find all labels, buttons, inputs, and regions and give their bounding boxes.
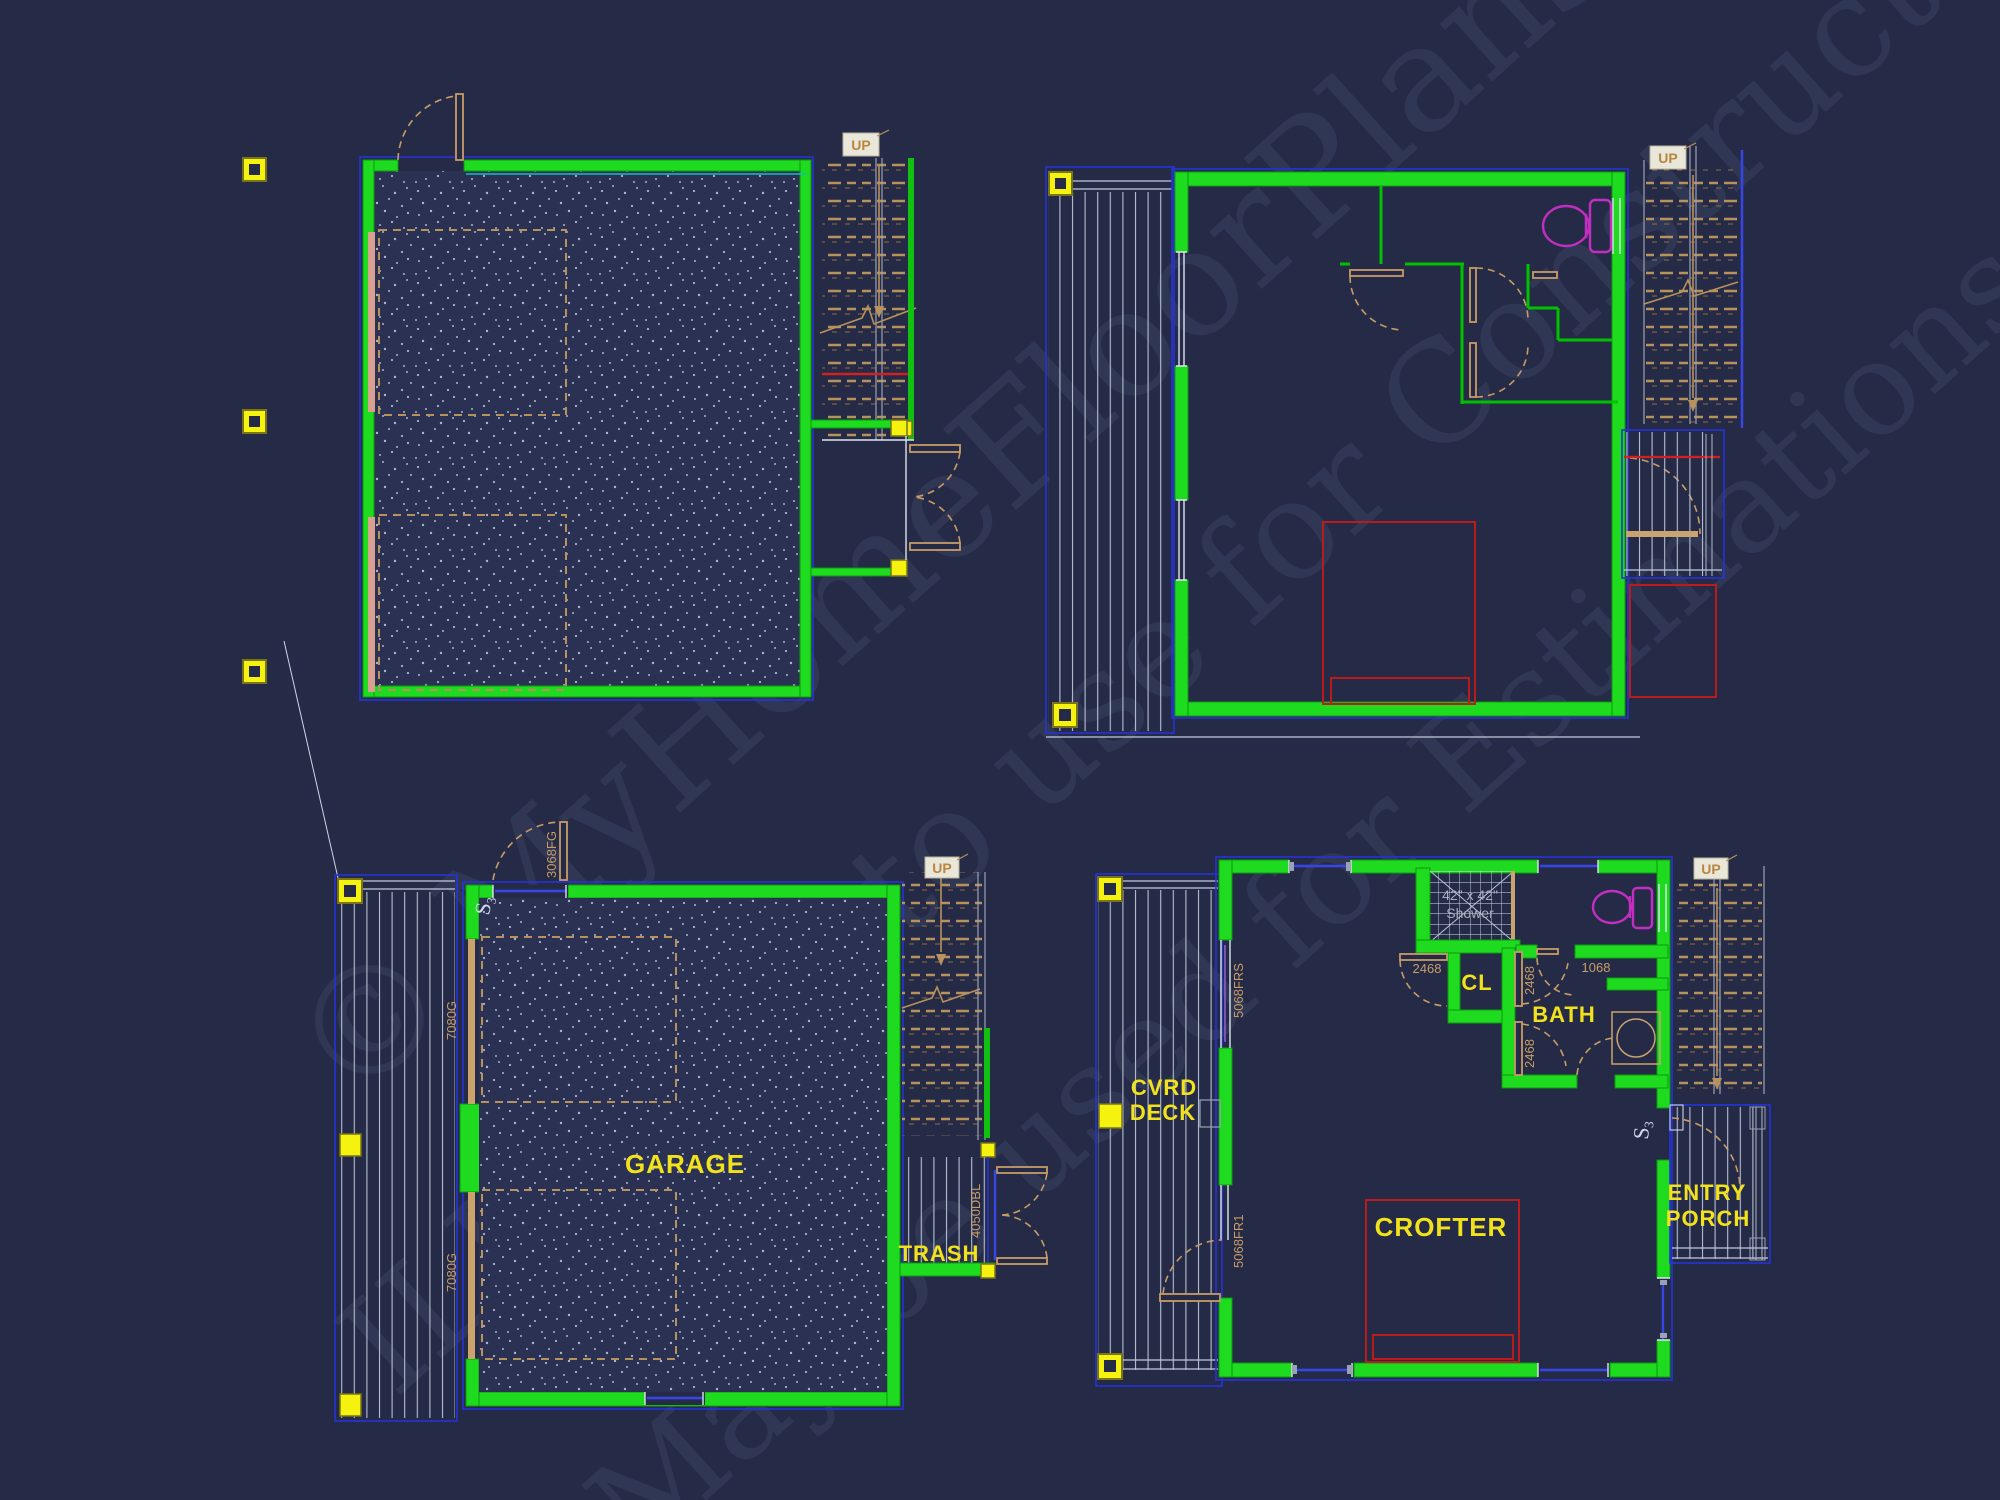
crofter-plan: CVRD DECK <box>1096 855 1770 1386</box>
garage-title: GARAGE <box>625 1149 745 1179</box>
svg-text:3068FG: 3068FG <box>544 831 559 878</box>
window <box>645 1392 705 1405</box>
crofter-stairs: UP <box>1674 855 1764 1094</box>
trash-label: TRASH <box>899 1241 980 1266</box>
window <box>1538 860 1598 873</box>
garage-door-label: 7080G <box>444 1253 459 1292</box>
svg-text:5068FRS: 5068FRS <box>1231 963 1246 1018</box>
door-leaf <box>997 1258 1047 1264</box>
shower-icon: 42" x 42" Shower <box>1430 871 1515 942</box>
window <box>1657 1278 1670 1340</box>
door-leaf <box>1400 954 1447 960</box>
closet-label: CL <box>1461 970 1492 995</box>
main-deck <box>1046 167 1174 733</box>
stairs-up-label: UP <box>1694 855 1737 879</box>
door-size-label: 2468 <box>1522 1039 1537 1068</box>
porch-step <box>1626 531 1698 537</box>
door-leaf <box>1537 949 1558 954</box>
foundation-slab <box>374 171 801 686</box>
toilet-icon <box>1593 888 1652 928</box>
door-size-label: 2468 <box>1522 966 1537 995</box>
svg-text:S3: S3 <box>1628 1120 1657 1141</box>
leader-line <box>284 641 338 878</box>
garage-door-panel <box>468 939 475 1104</box>
cad-drawing-canvas: © MyHomeFloorPlans.com ILLEGAL to use fo… <box>0 0 2000 1500</box>
window <box>1538 1363 1608 1377</box>
bath-label: BATH <box>1532 1002 1595 1027</box>
foundation-top-door <box>398 94 463 160</box>
svg-text:42" x 42": 42" x 42" <box>1442 887 1498 903</box>
door-leaf <box>1515 952 1522 1006</box>
garage-door-panel <box>468 1192 475 1359</box>
svg-text:UP: UP <box>1658 150 1677 166</box>
svg-text:5068FR1: 5068FR1 <box>1231 1215 1246 1268</box>
door-size-label: 1068 <box>1582 960 1611 975</box>
entry-porch-label: PORCH <box>1666 1206 1750 1231</box>
window <box>1292 1363 1352 1377</box>
door-leaf <box>1470 343 1476 397</box>
crofter-interior: 42" x 42" Shower 2468 2468 2468 <box>1400 868 1668 1088</box>
door-leaf <box>910 543 960 550</box>
foundation-column-markers <box>243 158 266 683</box>
section-marker-icon: S3 <box>1628 1120 1657 1141</box>
cvrd-deck-label: DECK <box>1130 1100 1196 1125</box>
door-leaf <box>1515 1022 1522 1075</box>
cvrd-deck-label: CVRD <box>1131 1075 1197 1100</box>
svg-text:4050DBL: 4050DBL <box>968 1184 983 1238</box>
washer-icon <box>1612 1012 1660 1064</box>
door-leaf <box>997 1167 1047 1173</box>
covered-deck: CVRD DECK <box>1096 874 1222 1386</box>
main-landing-porch <box>1622 430 1724 578</box>
garage-slab <box>479 898 887 1392</box>
door-leaf <box>1533 272 1557 278</box>
svg-text:UP: UP <box>932 860 951 876</box>
door-size-label: 2468 <box>1413 961 1442 976</box>
garage-deck <box>335 875 457 1421</box>
foundation-stairs: UP <box>820 130 916 440</box>
door-leaf <box>456 94 463 160</box>
main-stairs: UP <box>1644 143 1742 428</box>
door-leaf <box>1470 268 1476 322</box>
floor-plan-drawing: © MyHomeFloorPlans.com ILLEGAL to use fo… <box>0 0 2000 1500</box>
door-leaf <box>560 822 567 880</box>
garage-door-label: 7080G <box>444 1001 459 1040</box>
stairs-up-label: UP <box>843 130 889 156</box>
door-leaf <box>910 445 960 452</box>
door-leaf <box>1350 270 1403 276</box>
svg-text:UP: UP <box>1701 861 1720 877</box>
svg-text:Shower: Shower <box>1446 905 1494 921</box>
entry-porch-label: ENTRY <box>1668 1180 1747 1205</box>
svg-text:UP: UP <box>851 137 870 153</box>
crofter-title: CROFTER <box>1375 1212 1508 1242</box>
entry-porch: ENTRY PORCH <box>1666 1105 1770 1263</box>
door-leaf <box>1160 1294 1220 1301</box>
garage-stairs: UP <box>902 854 995 1157</box>
